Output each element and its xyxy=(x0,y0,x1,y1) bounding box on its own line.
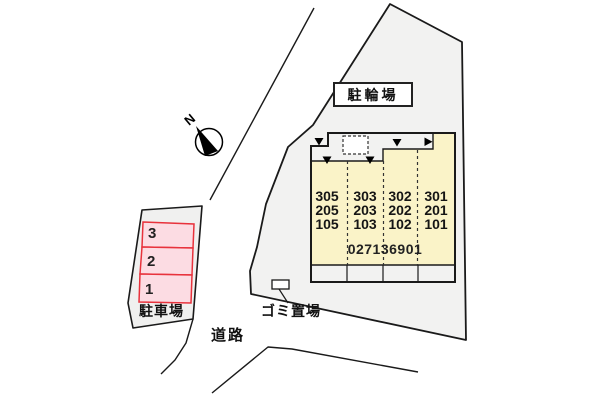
unit-number: 103 xyxy=(347,217,383,231)
unit-number: 203 xyxy=(347,203,383,217)
unit-number: 202 xyxy=(382,203,418,217)
bicycle-parking-label: 駐輪場 xyxy=(348,85,399,105)
unit-number: 301 xyxy=(418,189,454,203)
unit-number: 303 xyxy=(347,189,383,203)
stairs-dashed-box xyxy=(343,136,368,154)
parking-space-number-3: 3 xyxy=(148,226,156,241)
unit-number: 101 xyxy=(418,217,454,231)
unit-column-2: 303 203 103 xyxy=(347,189,383,231)
bicycle-parking-label-box: 駐輪場 xyxy=(333,82,413,107)
compass-icon xyxy=(196,126,223,156)
road-edge-line-lower xyxy=(212,347,418,393)
garbage-box xyxy=(272,280,289,289)
unit-number: 305 xyxy=(309,189,345,203)
garbage-label: ゴミ置場 xyxy=(261,304,321,318)
unit-column-3: 302 202 102 xyxy=(382,189,418,231)
unit-number: 201 xyxy=(418,203,454,217)
building-number: 027136901 xyxy=(345,241,425,257)
parking-space-number-2: 2 xyxy=(147,254,155,269)
road-edge-curve xyxy=(161,319,193,374)
parking-lot-label: 駐車場 xyxy=(139,304,184,318)
unit-number: 302 xyxy=(382,189,418,203)
unit-column-1: 305 205 105 xyxy=(309,189,345,231)
unit-column-4: 301 201 101 xyxy=(418,189,454,231)
site-plan-diagram: 駐輪場 305 205 105 303 203 103 302 202 102 … xyxy=(0,0,600,400)
road-label: 道路 xyxy=(211,328,245,343)
unit-number: 205 xyxy=(309,203,345,217)
site-plan-drawing xyxy=(0,0,600,400)
unit-number: 105 xyxy=(309,217,345,231)
unit-number: 102 xyxy=(382,217,418,231)
parking-space-number-1: 1 xyxy=(145,282,153,297)
